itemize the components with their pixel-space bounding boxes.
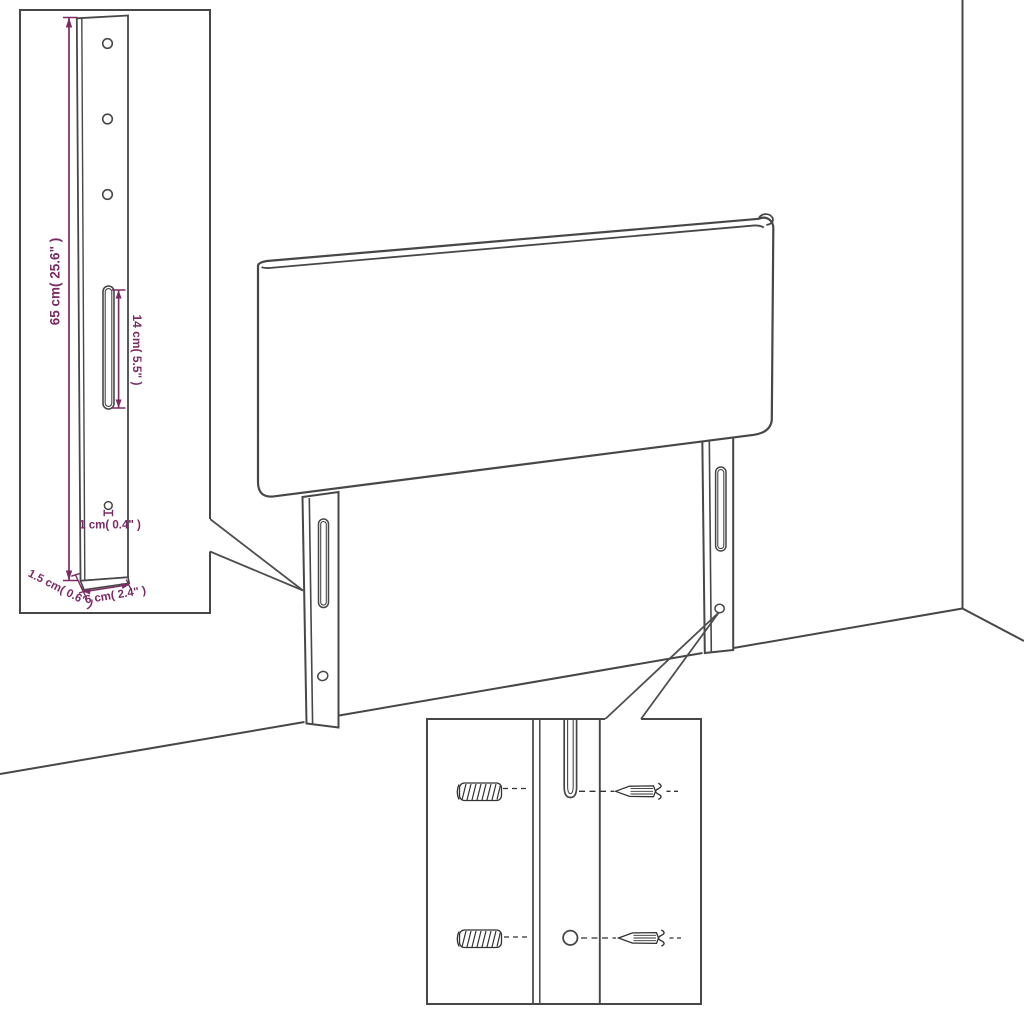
floor-line-left xyxy=(0,722,305,774)
mounting-detail-inset xyxy=(427,719,701,1004)
inset-leg xyxy=(77,16,130,590)
headboard xyxy=(258,214,773,496)
headboard-dimension-diagram: 65 cm( 25.6" ) 14 cm( 5.5" ) 1 cm( 0.4" … xyxy=(0,0,1024,1024)
hole-diameter-label: 1 cm( 0.4" ) xyxy=(79,520,141,532)
left-leg xyxy=(303,492,339,728)
callout-line xyxy=(210,519,303,591)
headboard-panel xyxy=(258,218,773,497)
right-leg xyxy=(702,431,733,653)
callout-line xyxy=(605,613,719,720)
diagram-canvas: 65 cm( 25.6" ) 14 cm( 5.5" ) 1 cm( 0.4" … xyxy=(0,0,1024,1024)
callout-line xyxy=(210,552,303,591)
leg-detail-inset: 65 cm( 25.6" ) 14 cm( 5.5" ) 1 cm( 0.4" … xyxy=(20,10,210,613)
callout-wedge-right xyxy=(605,613,719,720)
floor-line-right xyxy=(963,609,1024,642)
floor-line-center xyxy=(339,653,703,716)
callout-line xyxy=(641,613,719,720)
floor-line-wall xyxy=(734,609,963,649)
callout-wedge-left xyxy=(210,519,303,591)
slot-length-label: 14 cm( 5.5" ) xyxy=(130,314,144,385)
leg-height-label: 65 cm( 25.6" ) xyxy=(48,238,63,325)
